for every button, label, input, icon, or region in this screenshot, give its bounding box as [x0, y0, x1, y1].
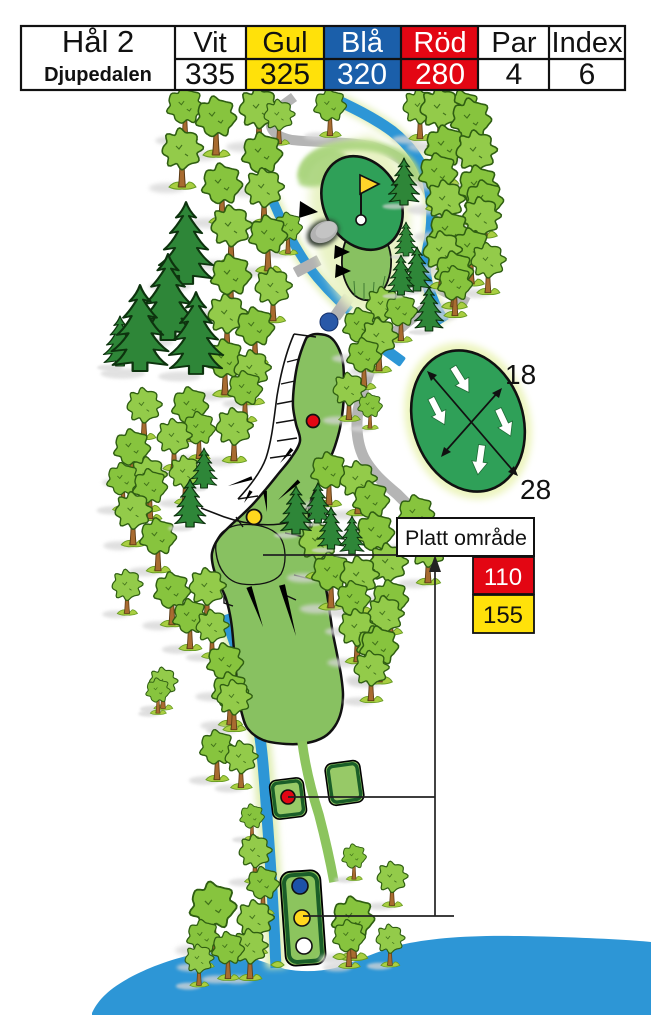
svg-text:28: 28	[520, 474, 551, 505]
svg-text:335: 335	[185, 58, 235, 91]
svg-text:Index: Index	[552, 27, 623, 59]
svg-text:155: 155	[483, 602, 523, 629]
svg-text:Vit: Vit	[193, 27, 226, 59]
svg-text:320: 320	[337, 58, 387, 91]
svg-text:4: 4	[506, 58, 523, 91]
svg-text:Par: Par	[491, 27, 536, 59]
svg-text:Hål 2: Hål 2	[62, 24, 134, 59]
svg-text:18: 18	[505, 359, 536, 390]
svg-text:6: 6	[579, 58, 596, 91]
svg-text:Blå: Blå	[341, 27, 384, 59]
svg-text:110: 110	[484, 564, 522, 591]
svg-text:325: 325	[260, 58, 310, 91]
svg-text:Djupedalen: Djupedalen	[44, 64, 152, 86]
svg-text:Platt område: Platt område	[405, 526, 527, 550]
svg-text:Gul: Gul	[262, 27, 307, 59]
svg-text:Röd: Röd	[413, 27, 466, 59]
svg-text:280: 280	[415, 58, 465, 91]
